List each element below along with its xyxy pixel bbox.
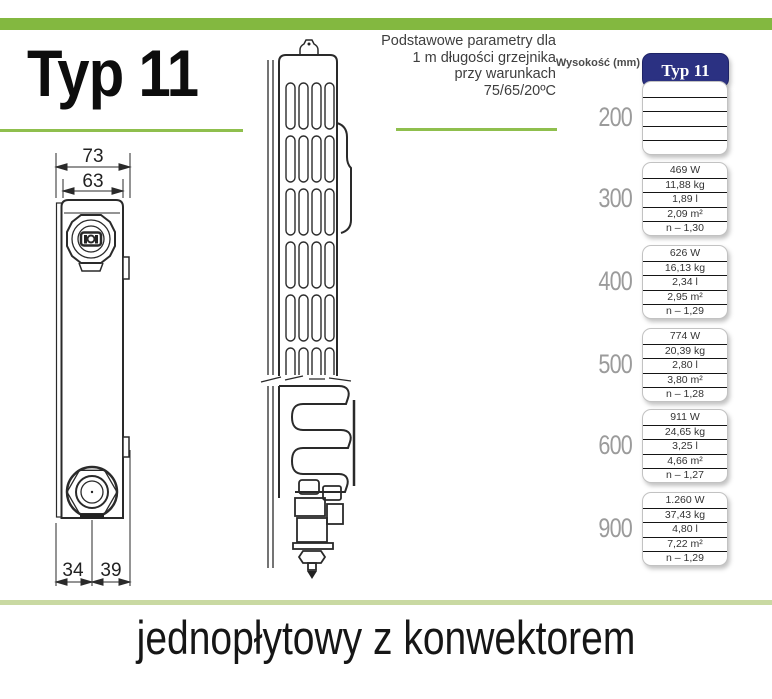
parameters-underline (396, 128, 557, 131)
bottom-valve-plug (67, 467, 117, 519)
height-label: 200 (579, 81, 632, 154)
value-cell: n – 1,29 (643, 304, 727, 319)
value-card: 1.260 W 37,43 kg 4,80 l 7,22 m² n – 1,29 (642, 492, 728, 566)
value-cell: 469 W (643, 164, 727, 178)
value-cell: 2,95 m² (643, 290, 727, 305)
footer-caption: jednopłytowy z konwektorem (66, 610, 707, 665)
top-valve-plug (67, 215, 115, 271)
value-cell: 626 W (643, 247, 727, 261)
value-cell: 2,80 l (643, 358, 727, 373)
value-card: 911 W 24,65 kg 3,25 l 4,66 m² n – 1,27 (642, 409, 728, 483)
table-row-200: 200 (566, 81, 728, 154)
value-cell: n – 1,29 (643, 551, 727, 566)
title-underline (0, 129, 243, 132)
value-cell (643, 97, 727, 112)
bottom-valve-assembly (293, 480, 343, 579)
value-cell: 16,13 kg (643, 261, 727, 276)
height-label: 600 (579, 409, 632, 482)
height-label: 300 (579, 162, 632, 235)
value-card: 626 W 16,13 kg 2,34 l 2,95 m² n – 1,29 (642, 245, 728, 319)
value-cell: n – 1,30 (643, 221, 727, 236)
value-cell: 2,34 l (643, 275, 727, 290)
height-label: 900 (579, 492, 632, 565)
height-label: 400 (579, 245, 632, 318)
value-cell: 7,22 m² (643, 537, 727, 552)
table-row-400: 400 626 W 16,13 kg 2,34 l 2,95 m² n – 1,… (566, 245, 728, 318)
value-cell: 11,88 kg (643, 178, 727, 193)
dim-total-depth-label: 73 (82, 146, 103, 167)
value-cell: 1,89 l (643, 192, 727, 207)
value-cell (643, 83, 727, 97)
value-cell: n – 1,27 (643, 468, 727, 483)
value-cell: 3,80 m² (643, 373, 727, 388)
value-cell (643, 111, 727, 126)
value-card: 774 W 20,39 kg 2,80 l 3,80 m² n – 1,28 (642, 328, 728, 402)
value-cell (643, 126, 727, 141)
value-card (642, 81, 728, 155)
table-row-500: 500 774 W 20,39 kg 2,80 l 3,80 m² n – 1,… (566, 328, 728, 401)
top-accent-bar (0, 18, 772, 30)
table-row-300: 300 469 W 11,88 kg 1,89 l 2,09 m² n – 1,… (566, 162, 728, 235)
dim-panel-depth-label: 63 (82, 171, 103, 192)
value-cell: 4,80 l (643, 522, 727, 537)
value-cell: 1.260 W (643, 494, 727, 508)
dim-bottom-right-label: 39 (100, 560, 121, 581)
radiator-side-drawing (255, 28, 370, 598)
height-label: 500 (579, 328, 632, 401)
value-cell: 911 W (643, 411, 727, 425)
convector-fin-section (279, 386, 354, 498)
value-cell: 37,43 kg (643, 508, 727, 523)
value-card: 469 W 11,88 kg 1,89 l 2,09 m² n – 1,30 (642, 162, 728, 236)
bottom-accent-line (0, 600, 772, 605)
height-column-label: Wysokość (mm) (545, 57, 640, 69)
value-cell: 24,65 kg (643, 425, 727, 440)
radiator-front-drawing: 73 63 34 39 (40, 145, 140, 595)
value-cell: n – 1,28 (643, 387, 727, 402)
value-cell: 2,09 m² (643, 207, 727, 222)
value-cell: 774 W (643, 330, 727, 344)
value-cell: 4,66 m² (643, 454, 727, 469)
dim-bottom-left-label: 34 (62, 560, 84, 581)
value-cell: 3,25 l (643, 439, 727, 454)
value-cell (643, 140, 727, 155)
convector-grille-slots (286, 83, 334, 394)
bleed-valve (300, 40, 318, 55)
page-title: Typ 11 (27, 40, 198, 106)
table-row-900: 900 1.260 W 37,43 kg 4,80 l 7,22 m² n – … (566, 492, 728, 565)
value-cell: 20,39 kg (643, 344, 727, 359)
break-line (261, 376, 361, 385)
table-row-600: 600 911 W 24,65 kg 3,25 l 4,66 m² n – 1,… (566, 409, 728, 482)
